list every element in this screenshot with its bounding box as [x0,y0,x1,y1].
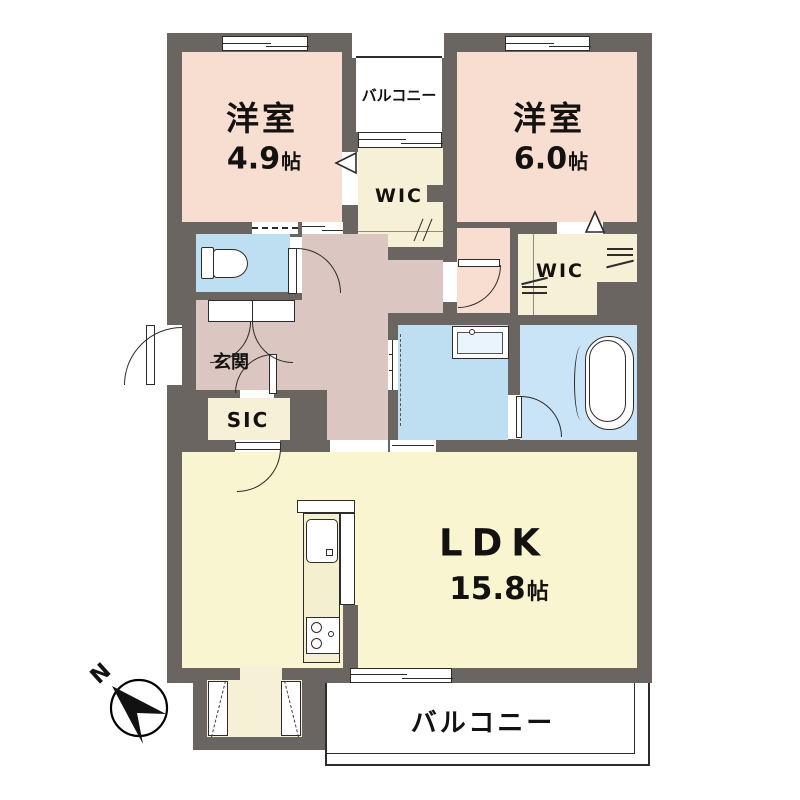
shoe-cabinet [208,300,295,322]
kitchen-counter-top-band [297,500,355,513]
wic1-wall-stub [427,185,447,202]
window-wic-1 [358,132,442,148]
floor-plan: N 洋室 4.9帖 洋室 6.0帖 バルコニー WIC WIC 玄関 SIC L… [0,0,800,800]
sic-label: SIC [227,408,270,432]
room-wic-2-ext [597,234,637,282]
genkan-label: 玄関 [213,348,249,374]
balcony-bottom-label: バルコニー [411,703,555,740]
sliding-door-bedroom-1 [302,222,343,234]
wic1-shelf-line [358,231,443,232]
window-bedroom-2 [505,36,590,51]
entry-door-swing [124,327,182,385]
hall-ldk-passage [330,440,388,452]
wic2-hanger-mark [607,254,633,256]
hallway-lower [327,390,388,440]
transom-toilet [252,222,298,234]
bedroom2-door-opening [443,262,457,302]
alcove-opening [240,666,282,684]
wic2-label: WIC [536,260,584,282]
window-bedroom-1 [222,36,308,51]
folding-door-icon-wic1 [331,150,358,177]
kitchen-wall-stub [343,605,358,668]
washroom-ldk-sliding [390,440,436,452]
alcove-panel-left [208,681,228,736]
bath-step-curve [574,346,588,420]
folding-door-icon-wic2 [582,209,609,234]
wic1-label: WIC [375,185,423,207]
compass-icon [104,672,176,748]
bedroom1-area: 4.9帖 [227,142,301,177]
wic2-hanger-mark [522,286,547,288]
hallway-wing [388,260,443,313]
balcony-inner-line-v [634,683,635,753]
ldk-area: 15.8帖 [449,571,549,607]
toilet-door-leaf [288,248,297,294]
wic2-shelf-line [533,234,534,315]
bathtub-icon [585,336,634,430]
wic2-hanger-mark [607,248,633,250]
washroom-hall-sliding [388,340,398,390]
washbasin-icon [452,326,509,359]
washer-space-line [400,334,401,426]
window-ldk-balcony [350,668,452,683]
ldk-label: LDK [439,522,549,565]
balcony-top-label: バルコニー [362,85,437,106]
kitchen-sink-icon [306,519,338,563]
toilet-bowl-icon [213,249,248,278]
balcony-top-recess [352,33,444,58]
kitchen-stove-icon [306,617,340,654]
bedroom2-label: 洋室 [513,92,585,140]
bedroom1-label: 洋室 [226,92,298,140]
kitchen-counter-side-band [340,513,355,605]
wic2-hanger-mark [522,292,547,294]
balcony-inner-line-h [325,753,635,754]
alcove-panel-right [281,681,301,736]
bedroom2-area: 6.0帖 [514,142,588,177]
